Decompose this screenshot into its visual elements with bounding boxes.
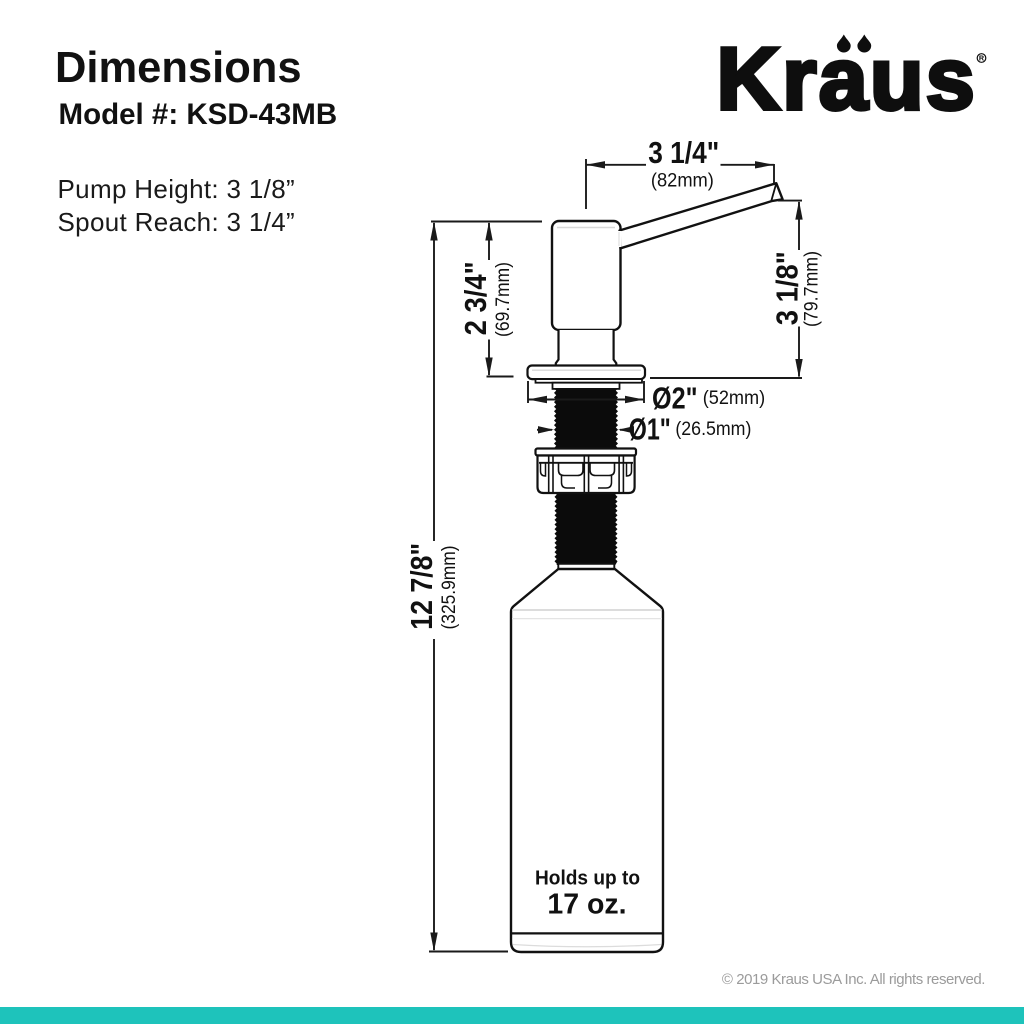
svg-text:2 3/4": 2 3/4" (458, 261, 493, 335)
svg-text:17 oz.: 17 oz. (547, 889, 626, 921)
svg-text:(82mm): (82mm) (651, 170, 714, 192)
svg-text:Ø1": Ø1" (629, 413, 671, 447)
svg-text:(26.5mm): (26.5mm) (675, 419, 751, 440)
svg-text:(52mm): (52mm) (703, 388, 766, 409)
svg-text:(325.9mm): (325.9mm) (439, 546, 460, 630)
svg-text:12 7/8": 12 7/8" (404, 543, 439, 630)
svg-text:3 1/4": 3 1/4" (648, 135, 719, 170)
svg-text:3 1/8": 3 1/8" (770, 251, 805, 325)
svg-text:(79.7mm): (79.7mm) (802, 251, 823, 327)
svg-text:Holds up to: Holds up to (535, 868, 640, 890)
svg-text:R: R (979, 54, 985, 63)
svg-text:(69.7mm): (69.7mm) (493, 262, 514, 337)
svg-text:Ø2": Ø2" (652, 382, 698, 416)
